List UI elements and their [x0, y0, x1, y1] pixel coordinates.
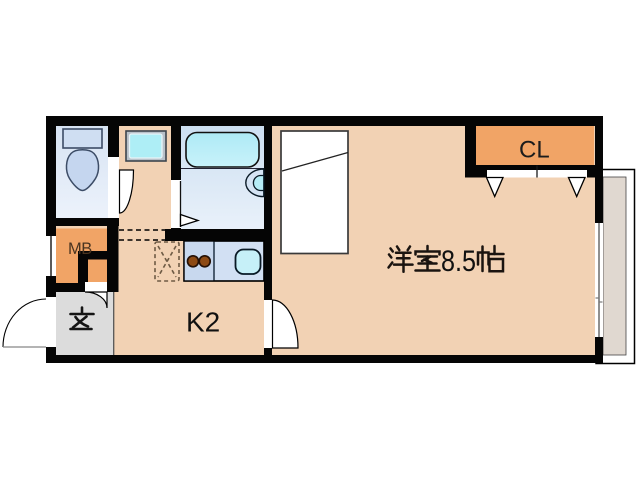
svg-text:K2: K2	[186, 307, 220, 338]
svg-text:MB: MB	[68, 240, 92, 258]
svg-text:8.5: 8.5	[441, 245, 476, 278]
svg-text:CL: CL	[519, 137, 550, 164]
